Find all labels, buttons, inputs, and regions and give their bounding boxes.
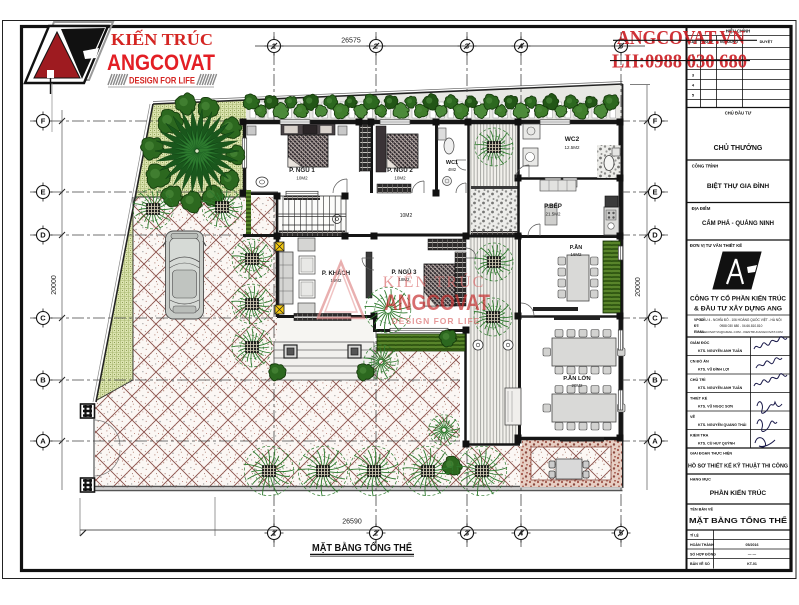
svg-text:KTS. VŨ NGỌC SƠN: KTS. VŨ NGỌC SƠN — [698, 404, 733, 409]
svg-text:C: C — [652, 314, 658, 323]
svg-text:TỈ LỆ: TỈ LỆ — [690, 533, 699, 538]
svg-text:B: B — [652, 376, 658, 385]
svg-text:21.5M2: 21.5M2 — [545, 212, 561, 217]
svg-text:DESIGN FOR LIFE: DESIGN FOR LIFE — [129, 76, 195, 87]
svg-text:10M2: 10M2 — [394, 176, 406, 181]
svg-text:GIÁM ĐỐC: GIÁM ĐỐC — [690, 340, 710, 345]
svg-text:KIẾN TRÚC: KIẾN TRÚC — [111, 30, 213, 49]
svg-text:MẶT BẰNG TỔNG THỂ: MẶT BẰNG TỔNG THỂ — [689, 516, 787, 525]
svg-text:A: A — [652, 437, 658, 446]
svg-text:KIỂM TRA: KIỂM TRA — [690, 433, 709, 438]
svg-text:P. NGỦ 1: P. NGỦ 1 — [289, 167, 315, 174]
svg-text:CHỦ THƯỞNG: CHỦ THƯỞNG — [714, 143, 763, 152]
svg-text:CÔNG TRÌNH: CÔNG TRÌNH — [692, 164, 719, 169]
svg-text:LIỀU 4 - NGHĨA ĐÔ - 106 HOÀNG: LIỀU 4 - NGHĨA ĐÔ - 106 HOÀNG QUỐC VIỆT … — [700, 317, 781, 322]
svg-text:16M2: 16M2 — [571, 252, 583, 257]
svg-text:B: B — [40, 376, 46, 385]
svg-text:KTS. NGUYỄN QUANG THÁI: KTS. NGUYỄN QUANG THÁI — [698, 422, 746, 427]
svg-text:LH:0988 030 680: LH:0988 030 680 — [612, 51, 747, 73]
svg-text:20000: 20000 — [635, 277, 642, 297]
svg-text:P.BẾP: P.BẾP — [544, 203, 562, 210]
svg-text:ANGCOVAT.VN: ANGCOVAT.VN — [617, 27, 745, 49]
svg-text:ANGCOVAT.VN@GMAIL.COM - KIENTR: ANGCOVAT.VN@GMAIL.COM - KIENTRUCANGCOVAT… — [699, 330, 783, 334]
svg-text:CN ĐỒ ÁN: CN ĐỒ ÁN — [690, 359, 709, 364]
svg-text:26590: 26590 — [342, 519, 362, 526]
svg-text:C: C — [40, 314, 46, 323]
svg-text:WC2: WC2 — [565, 136, 580, 143]
svg-text:D: D — [652, 231, 658, 240]
svg-text:MẶT BẰNG TỔNG THỂ: MẶT BẰNG TỔNG THỂ — [312, 541, 412, 554]
svg-text:DUYỆT: DUYỆT — [760, 39, 774, 44]
svg-text:VẼ: VẼ — [690, 414, 696, 419]
svg-text:P.ĂN LỚN: P.ĂN LỚN — [563, 374, 590, 382]
svg-text:KTS. NGUYỄN ANH TUẤN: KTS. NGUYỄN ANH TUẤN — [698, 348, 743, 353]
svg-text:CHỦ TRÌ: CHỦ TRÌ — [690, 377, 705, 382]
svg-text:29M2: 29M2 — [572, 383, 584, 388]
svg-text:E: E — [40, 188, 45, 197]
svg-text:CHỦ ĐẦU TƯ: CHỦ ĐẦU TƯ — [725, 111, 752, 116]
svg-text:KTS. VŨ ĐÌNH LỢI: KTS. VŨ ĐÌNH LỢI — [698, 367, 729, 372]
svg-text:ANGCOVAT: ANGCOVAT — [384, 290, 490, 315]
svg-text:HỒ SƠ THIẾT KẾ KỸ THUẬT THI CÔ: HỒ SƠ THIẾT KẾ KỸ THUẬT THI CÔNG — [688, 462, 788, 470]
svg-text:F: F — [41, 117, 46, 126]
svg-text:— —: — — — [748, 553, 757, 557]
svg-text:ANGCOVAT: ANGCOVAT — [107, 50, 215, 75]
svg-text:10M2: 10M2 — [296, 176, 308, 181]
svg-text:TÊN BẢN VẼ: TÊN BẢN VẼ — [690, 507, 713, 512]
svg-text:A: A — [40, 437, 46, 446]
svg-text:F: F — [653, 117, 658, 126]
svg-text:WC1: WC1 — [446, 160, 458, 166]
svg-text:ĐT:: ĐT: — [694, 324, 699, 328]
svg-text:0988 030 680 - 04.66.810.810: 0988 030 680 - 04.66.810.810 — [720, 324, 763, 328]
svg-text:26575: 26575 — [341, 38, 361, 45]
svg-text:20000: 20000 — [51, 275, 58, 295]
svg-text:GIAI ĐOẠN THỰC HIỆN: GIAI ĐOẠN THỰC HIỆN — [690, 451, 732, 456]
svg-text:D: D — [40, 231, 46, 240]
svg-text:4M2: 4M2 — [448, 167, 457, 172]
svg-text:BIỆT THỰ GIA ĐÌNH: BIỆT THỰ GIA ĐÌNH — [707, 181, 770, 190]
svg-text:BẢN VẼ SỐ: BẢN VẼ SỐ — [690, 561, 710, 566]
svg-text:ĐỊA ĐIỂM: ĐỊA ĐIỂM — [692, 206, 711, 211]
svg-text:CẨM PHẢ - QUẢNG NINH: CẨM PHẢ - QUẢNG NINH — [702, 220, 774, 227]
svg-text:10M2: 10M2 — [400, 213, 413, 219]
svg-text:KT-01: KT-01 — [747, 562, 757, 566]
svg-text:05/2016: 05/2016 — [746, 543, 759, 547]
svg-text:DESIGN FOR LIFE: DESIGN FOR LIFE — [392, 316, 481, 326]
svg-text:E: E — [652, 188, 657, 197]
svg-text:SỐ HỢP ĐỒNG: SỐ HỢP ĐỒNG — [690, 552, 716, 557]
svg-text:12.5M2: 12.5M2 — [564, 145, 580, 150]
svg-text:KIẾN TRÚC: KIẾN TRÚC — [383, 272, 486, 291]
svg-text:HẠNG MỤC: HẠNG MỤC — [690, 478, 711, 482]
svg-text:KTS. NGUYỄN ANH TUẤN: KTS. NGUYỄN ANH TUẤN — [698, 385, 743, 390]
svg-text:P.ĂN: P.ĂN — [570, 244, 582, 251]
svg-text:KTS. CÙ HUY QUỲNH: KTS. CÙ HUY QUỲNH — [698, 441, 735, 446]
svg-text:HOÀN THÀNH: HOÀN THÀNH — [690, 542, 715, 547]
svg-text:P. NGỦ 2: P. NGỦ 2 — [387, 167, 413, 174]
svg-text:ĐƠN VỊ TƯ VẤN THIẾT KẾ: ĐƠN VỊ TƯ VẤN THIẾT KẾ — [690, 243, 742, 248]
svg-text:THIẾT KẾ: THIẾT KẾ — [690, 396, 708, 401]
